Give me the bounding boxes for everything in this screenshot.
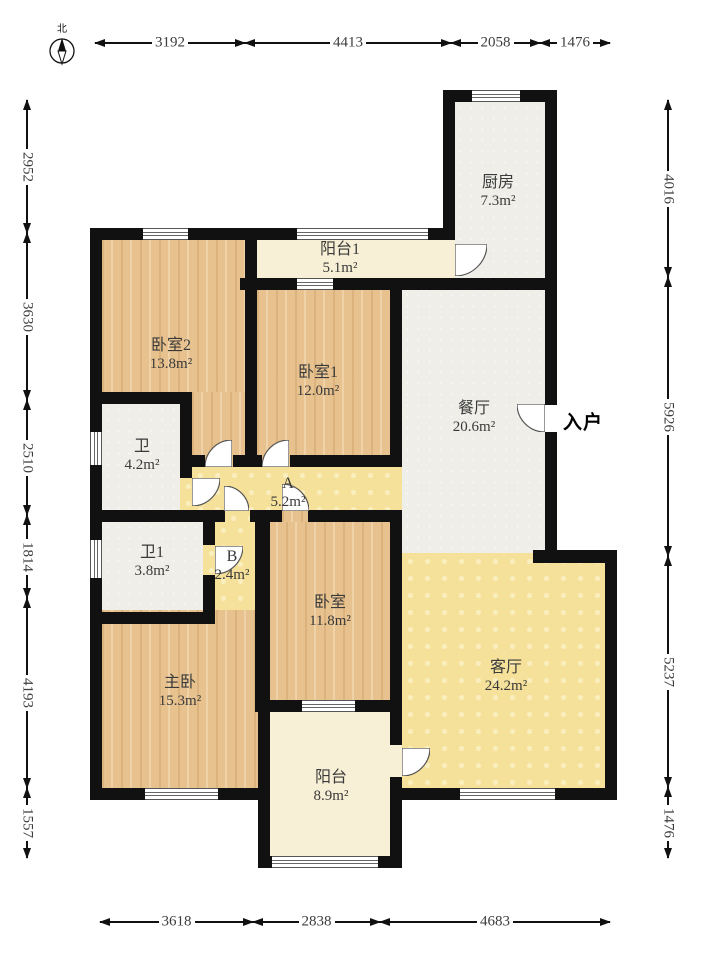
room-name: A — [271, 474, 306, 493]
room-area: 24.2m² — [485, 677, 527, 696]
dim-top-2: 4413 — [245, 42, 451, 44]
dim-label: 2510 — [19, 440, 36, 476]
dim-right-1: 4016 — [667, 100, 669, 277]
wall — [245, 240, 257, 467]
room-label-bedroom: 卧室 11.8m² — [309, 593, 351, 631]
wall — [90, 788, 145, 800]
room-area: 3.8m² — [135, 562, 170, 581]
room-name: 卧室 — [309, 593, 351, 612]
dim-left-3: 2510 — [26, 400, 28, 515]
room-label-kitchen: 厨房 7.3m² — [481, 173, 516, 211]
wall — [258, 700, 302, 712]
window-balcony-bottom — [272, 856, 378, 868]
compass-icon — [46, 35, 78, 67]
wall — [258, 712, 270, 868]
dim-label: 4016 — [660, 171, 677, 207]
room-name: 主卧 — [159, 673, 201, 692]
dim-top-4: 1476 — [540, 42, 610, 44]
window-living-bottom — [460, 788, 555, 800]
dim-label: 1557 — [19, 805, 36, 841]
door-bedroom1 — [262, 440, 289, 467]
door-kitchen — [455, 244, 487, 276]
window-bath1-left — [90, 540, 102, 578]
dim-right-4: 1476 — [667, 787, 669, 858]
room-label-living: 客厅 24.2m² — [485, 658, 527, 696]
dim-label: 2952 — [19, 149, 36, 185]
dim-label: 1814 — [19, 539, 36, 575]
room-label-balcony: 阳台 8.9m² — [314, 768, 349, 806]
wall — [218, 788, 258, 800]
door-living-balcony — [402, 748, 430, 776]
dim-label: 2838 — [299, 914, 335, 931]
dim-label: 4193 — [19, 675, 36, 711]
wall — [203, 522, 215, 545]
window-master-bottom — [145, 788, 218, 800]
room-label-dining: 餐厅 20.6m² — [453, 399, 495, 437]
dim-label: 4683 — [477, 914, 513, 931]
wall — [390, 800, 402, 868]
dim-label: 3618 — [159, 914, 195, 931]
door-bath — [192, 478, 220, 506]
dim-label: 5926 — [660, 399, 677, 435]
dim-label: 1476 — [660, 805, 677, 841]
wall — [333, 278, 557, 290]
room-area: 15.3m² — [159, 692, 201, 711]
wall — [180, 404, 192, 478]
dim-top-1: 3192 — [95, 42, 245, 44]
dim-label: 2058 — [478, 35, 514, 52]
dim-left-4: 1814 — [26, 515, 28, 598]
room-area: 5.1m² — [320, 259, 360, 278]
room-label-corridor-b: B 2.4m² — [215, 547, 250, 585]
wall — [203, 575, 215, 612]
wall — [233, 455, 262, 467]
room-name: 卫 — [125, 437, 160, 456]
wall — [90, 392, 192, 404]
wall — [390, 788, 460, 800]
wall — [390, 290, 402, 467]
window-bedroom1-top — [297, 278, 333, 290]
wall — [428, 228, 455, 240]
room-area: 7.3m² — [481, 192, 516, 211]
dim-bottom-1: 3618 — [100, 921, 253, 923]
wall — [390, 522, 402, 700]
room-name: B — [215, 547, 250, 566]
wall — [533, 550, 617, 563]
dim-label: 4413 — [330, 35, 366, 52]
room-name: 卧室2 — [150, 336, 192, 355]
wall — [308, 510, 402, 522]
wall — [188, 228, 297, 240]
room-name: 卫1 — [135, 543, 170, 562]
dim-left-1: 2952 — [26, 100, 28, 233]
dim-right-2: 5926 — [667, 277, 669, 556]
room-label-master: 主卧 15.3m² — [159, 673, 201, 711]
window-kitchen-top — [472, 90, 520, 102]
window-bedroom-balcony — [302, 700, 355, 712]
wall — [192, 455, 205, 467]
north-label: 北 — [42, 24, 82, 35]
wall — [545, 102, 557, 405]
dim-right-3: 5237 — [667, 556, 669, 787]
room-name: 卧室1 — [297, 363, 339, 382]
dim-top-3: 2058 — [451, 42, 540, 44]
room-area: 8.9m² — [314, 787, 349, 806]
room-area: 20.6m² — [453, 418, 495, 437]
door-bedroom2 — [205, 440, 232, 467]
entry-label: 入户 — [563, 408, 603, 435]
dim-label: 1476 — [557, 35, 593, 52]
wall — [255, 510, 270, 712]
wall — [390, 777, 402, 788]
door-entry — [517, 404, 545, 432]
dim-left-2: 3630 — [26, 233, 28, 400]
room-area: 11.8m² — [309, 612, 351, 631]
room-label-bedroom2: 卧室2 13.8m² — [150, 336, 192, 374]
doorway-b — [225, 510, 250, 522]
dim-label: 3192 — [152, 35, 188, 52]
room-name: 厨房 — [481, 173, 516, 192]
dim-left-5: 4193 — [26, 598, 28, 788]
wall — [290, 455, 390, 467]
wall — [90, 465, 102, 540]
room-area: 4.2m² — [125, 456, 160, 475]
window-balcony1-top — [297, 228, 428, 240]
wall — [90, 510, 225, 522]
door-corridor-b — [224, 486, 249, 511]
doorway-balcony — [390, 745, 402, 777]
dim-label: 5237 — [660, 654, 677, 690]
room-label-bedroom1: 卧室1 12.0m² — [297, 363, 339, 401]
floor-plan-page: 北 3192 4413 2058 1476 3618 2838 4683 295… — [0, 0, 709, 962]
room-name: 餐厅 — [453, 399, 495, 418]
room-area: 12.0m² — [297, 382, 339, 401]
window-bath-left — [90, 432, 102, 465]
wall — [355, 700, 402, 712]
room-area: 13.8m² — [150, 355, 192, 374]
doorway-bath1 — [203, 545, 215, 575]
dim-bottom-2: 2838 — [253, 921, 380, 923]
room-area: 2.4m² — [215, 566, 250, 585]
doorway-bath — [180, 478, 192, 510]
room-name: 阳台 — [314, 768, 349, 787]
dim-label: 3630 — [19, 299, 36, 335]
room-name: 阳台1 — [320, 240, 360, 259]
wall — [258, 856, 272, 868]
wall — [390, 712, 402, 745]
wall — [605, 563, 617, 800]
room-area: 5.2m² — [271, 493, 306, 512]
room-label-hall-a: A 5.2m² — [271, 474, 306, 512]
window-bedroom2-top — [143, 228, 188, 240]
room-label-balcony1: 阳台1 5.1m² — [320, 240, 360, 278]
wall — [443, 102, 455, 240]
wall — [90, 612, 215, 624]
room-label-bath: 卫 4.2m² — [125, 437, 160, 475]
wall — [555, 788, 617, 800]
compass: 北 — [42, 24, 82, 72]
wall — [90, 228, 143, 240]
dim-bottom-3: 4683 — [380, 921, 610, 923]
wall — [545, 432, 557, 563]
room-label-bath1: 卫1 3.8m² — [135, 543, 170, 581]
room-name: 客厅 — [485, 658, 527, 677]
dim-left-6: 1557 — [26, 788, 28, 858]
